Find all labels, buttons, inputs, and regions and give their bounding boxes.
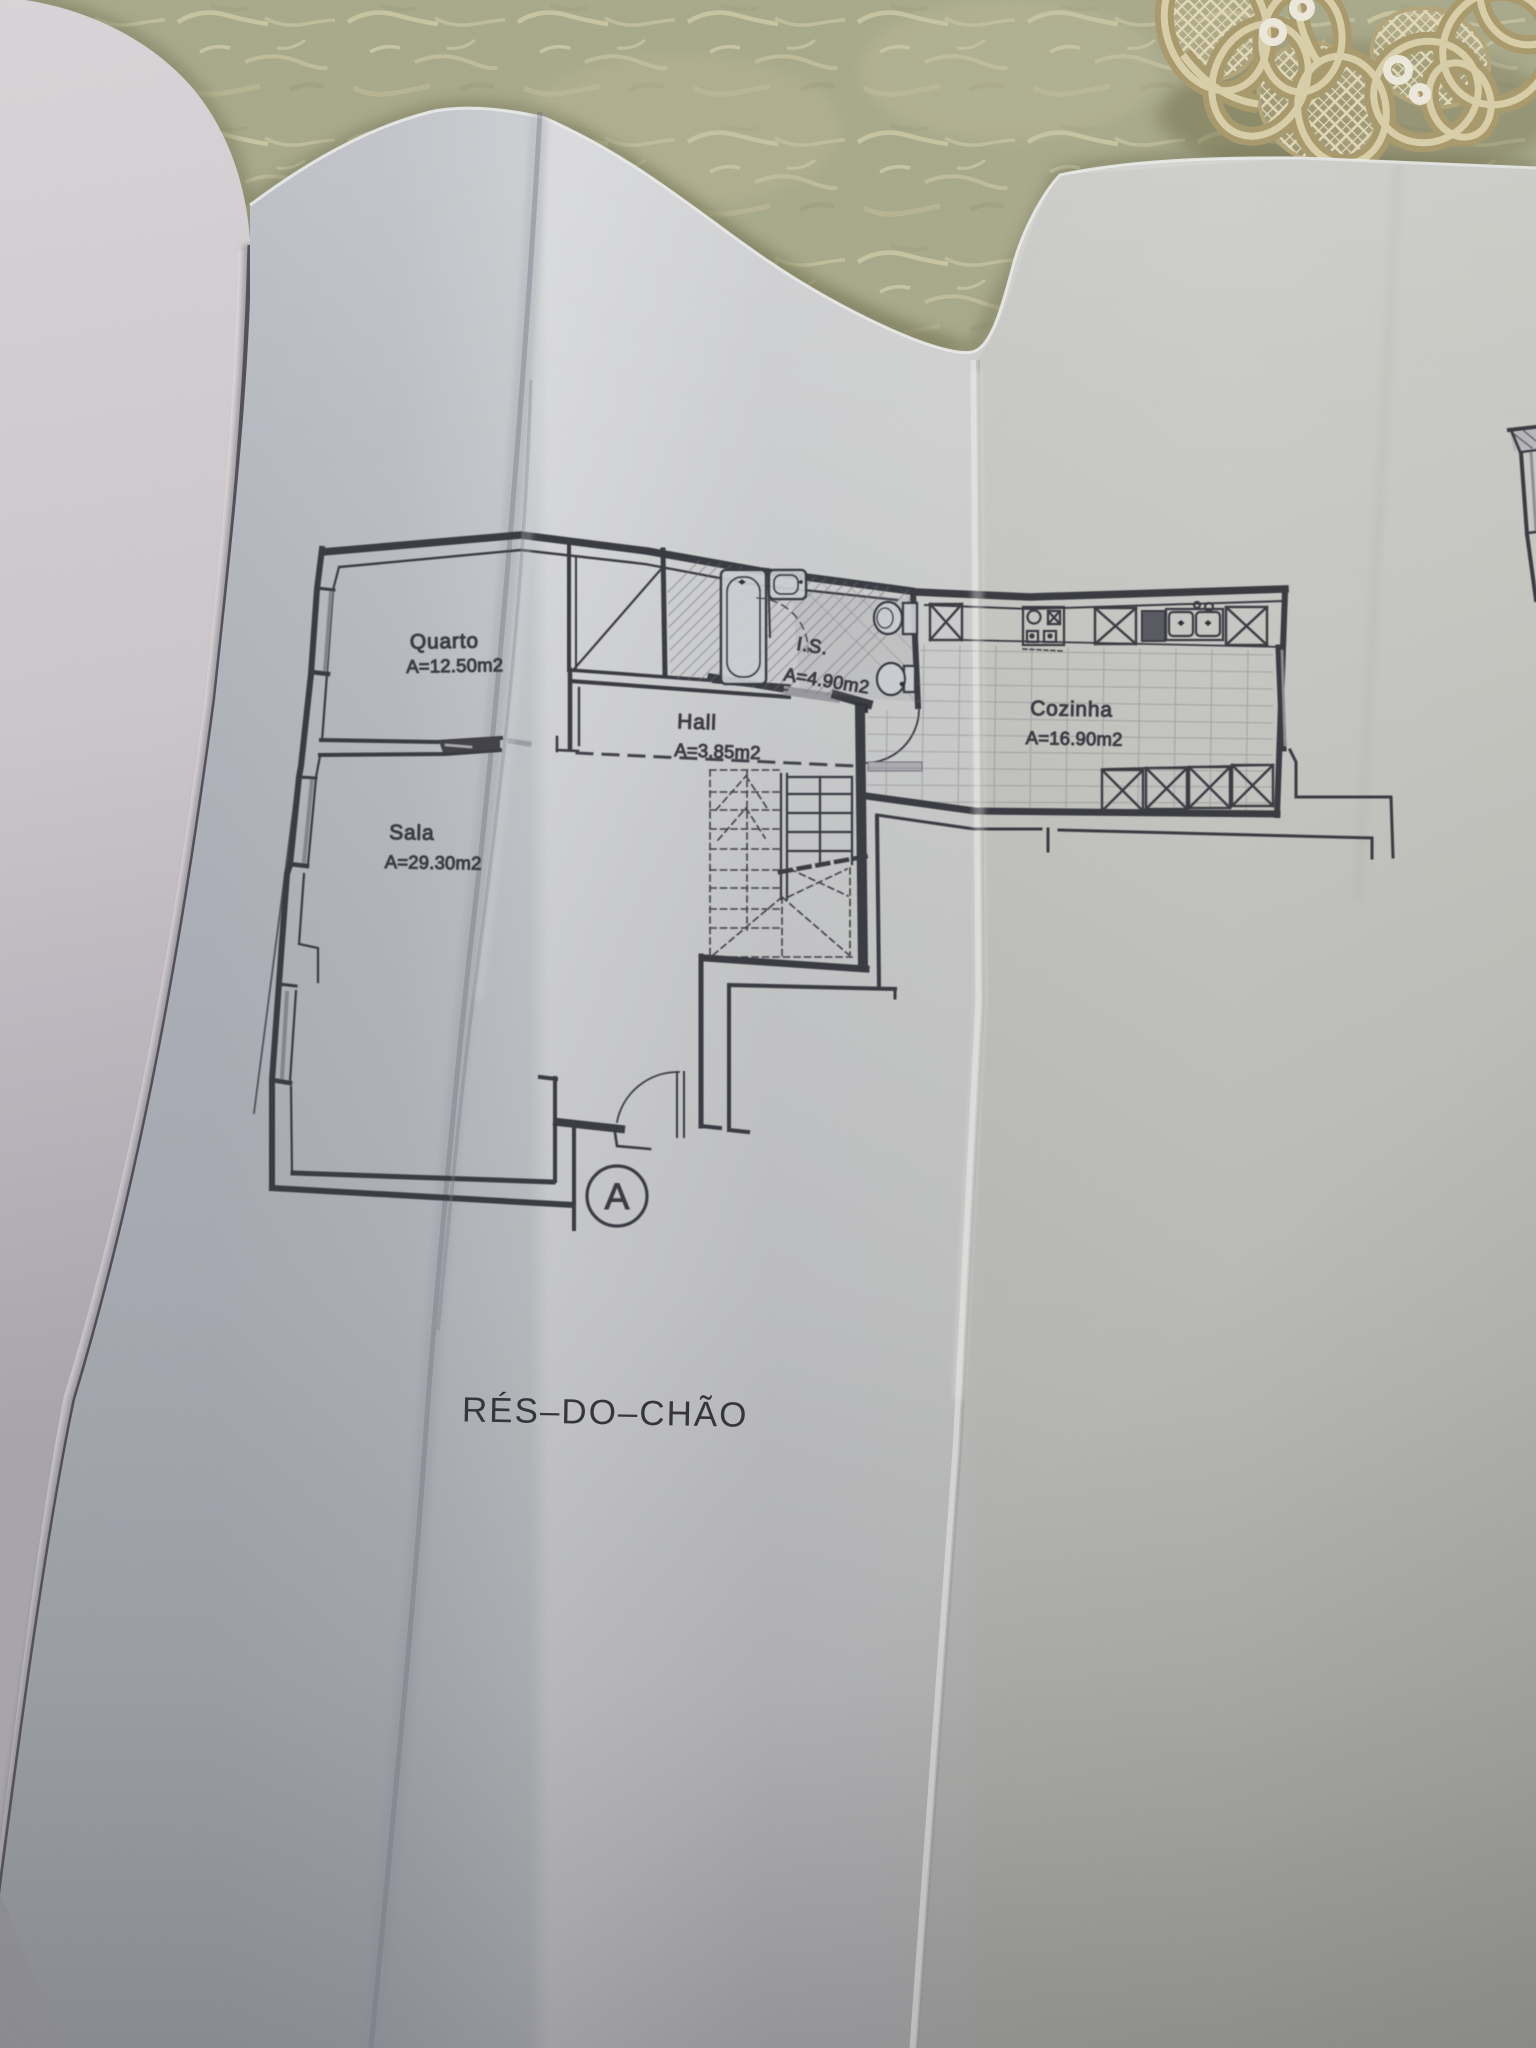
svg-text:RÉS–DO–CHÃO: RÉS–DO–CHÃO — [462, 1390, 749, 1434]
